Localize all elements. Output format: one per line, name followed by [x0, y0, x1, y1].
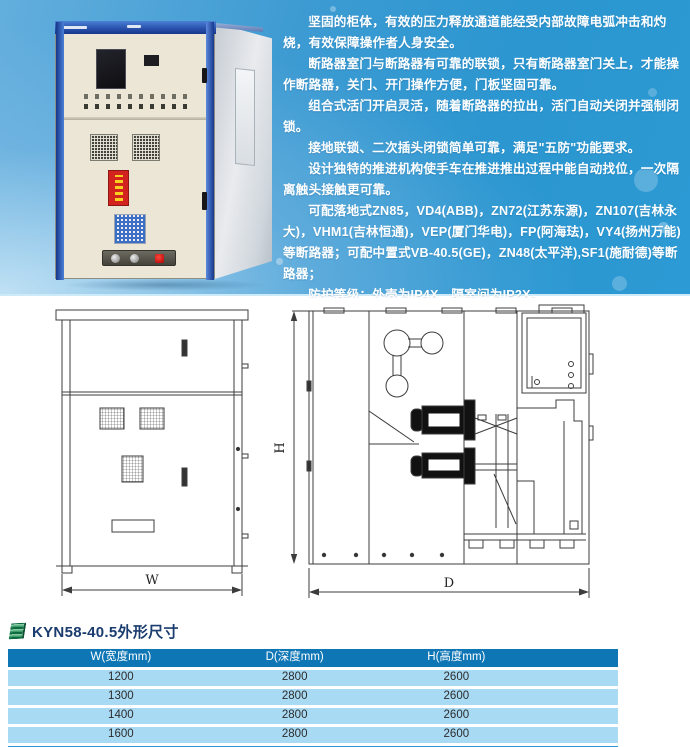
lv-compartment — [522, 305, 586, 393]
cabinet-right-pillar — [206, 22, 214, 280]
control-knob — [111, 254, 120, 263]
cabinet-vent-grille — [132, 134, 160, 161]
cabinet-side-window — [235, 68, 255, 166]
table-row: 1600 2800 2600 — [8, 727, 618, 743]
cabinet-vent-grille — [90, 134, 118, 161]
cabinet-left-pillar — [56, 22, 64, 280]
bushing-lower — [411, 448, 475, 484]
height-dimension-label: H — [273, 442, 288, 453]
dimensions-title-row: KYN58-40.5外形尺寸 — [10, 620, 179, 642]
hero-section: 坚固的柜体，有效的压力释放通道能经受内部故障电弧冲击和灼烧，有效保障操作者人身安… — [0, 0, 690, 296]
dimensions-table: W(宽度mm) D(深度mm) H(高度mm) 1200 2800 2600 1… — [8, 649, 618, 747]
product-page: 坚固的柜体，有效的压力释放通道能经受内部故障电弧冲击和灼烧，有效保障操作者人身安… — [0, 0, 690, 747]
dimensions-title: KYN58-40.5外形尺寸 — [32, 621, 179, 642]
breaker-handcart — [517, 400, 582, 534]
bushing-upper — [411, 400, 475, 440]
dimension-w: W — [62, 573, 242, 596]
product-photo — [45, 13, 272, 292]
technical-drawings-section: W — [0, 298, 690, 618]
table-row: 1300 2800 2600 — [8, 689, 618, 705]
lower-door-handle — [182, 468, 187, 486]
feature-paragraph: 可配落地式ZN85，VD4(ABB)，ZN72(江苏东源)，ZN107(吉林永大… — [283, 201, 686, 285]
door-handle — [202, 192, 207, 210]
table-header-height: H(高度mm) — [356, 652, 557, 664]
door-handle — [202, 68, 207, 83]
table-cell: 1600 — [8, 729, 234, 741]
stacked-layers-icon — [9, 623, 27, 640]
table-cell: 2800 — [234, 691, 356, 703]
photo-shadow — [63, 279, 267, 291]
table-row: 1200 2800 2600 — [8, 670, 618, 686]
cabinet-control-panel — [102, 250, 176, 266]
table-cell: 2600 — [356, 710, 557, 722]
bokeh-dot — [276, 258, 283, 265]
feature-paragraph: 接地联锁、二次插头闭锁简单可靠，满足"五防"功能要求。 — [283, 138, 686, 159]
table-cell: 2600 — [356, 691, 557, 703]
vent-grille — [140, 408, 164, 429]
table-cell: 2600 — [356, 672, 557, 684]
drawout-mechanism — [475, 414, 517, 528]
table-cell: 1300 — [8, 691, 234, 703]
nameplate-text-mark — [61, 26, 87, 29]
cabinet-cap-plate — [56, 310, 248, 320]
cabinet-body-outline — [62, 320, 242, 566]
table-cell: 2800 — [234, 729, 356, 741]
feature-paragraph: 坚固的柜体，有效的压力释放通道能经受内部故障电弧冲击和灼烧，有效保障操作者人身安… — [283, 12, 686, 54]
nameplate-text-mark — [127, 25, 141, 28]
side-view-drawing: H D — [264, 296, 688, 614]
upper-door-handle — [182, 340, 187, 356]
warning-sticker — [108, 170, 129, 206]
width-dimension-label: W — [145, 573, 159, 588]
depth-dimension-label: D — [444, 576, 454, 591]
table-header-depth: D(深度mm) — [234, 652, 356, 664]
vent-grille — [100, 408, 124, 429]
table-cell: 2600 — [356, 729, 557, 741]
cabinet-indicator-lights — [84, 104, 192, 109]
dimension-d: D — [309, 568, 589, 598]
feature-paragraph: 断路器室门与断路器有可靠的联锁，只有断路器室门关上，才能操作断路器，关门、开门操… — [283, 54, 686, 96]
busbar-insulators — [384, 330, 443, 397]
table-cell: 1400 — [8, 710, 234, 722]
table-cell: 1200 — [8, 672, 234, 684]
front-view-drawing: W — [36, 304, 264, 604]
control-knob — [130, 254, 139, 263]
cabinet-label-grid — [114, 214, 146, 244]
cabinet-front-panel — [55, 21, 215, 279]
table-cell: 2800 — [234, 672, 356, 684]
feature-paragraph: 组合式活门开启灵活，随着断路器的拉出，活门自动关闭并强制闭锁。 — [283, 96, 686, 138]
cabinet-indicator-lights — [84, 94, 192, 99]
table-header-row: W(宽度mm) D(深度mm) H(高度mm) — [8, 649, 618, 667]
control-red-button — [155, 254, 164, 263]
vent-grille — [122, 456, 143, 482]
cabinet-indicator-window — [144, 55, 159, 66]
table-row: 1400 2800 2600 — [8, 708, 618, 724]
dimension-h: H — [273, 311, 309, 564]
cabinet-nameplate-band — [55, 21, 216, 34]
table-cell: 2800 — [234, 710, 356, 722]
feature-paragraph: 设计独特的推进机构使手车在推进推出过程中能自动找位，一次隔离触头接触更可靠。 — [283, 159, 686, 201]
feature-text-block: 坚固的柜体，有效的压力释放通道能经受内部故障电弧冲击和灼烧，有效保障操作者人身安… — [283, 12, 686, 306]
cabinet-display-screen — [96, 49, 126, 89]
side-outline — [309, 311, 589, 564]
cabinet-door-divider — [64, 117, 206, 120]
label-plate — [112, 520, 154, 532]
cabinet-side-panel — [215, 23, 272, 279]
table-header-width: W(宽度mm) — [8, 652, 234, 664]
